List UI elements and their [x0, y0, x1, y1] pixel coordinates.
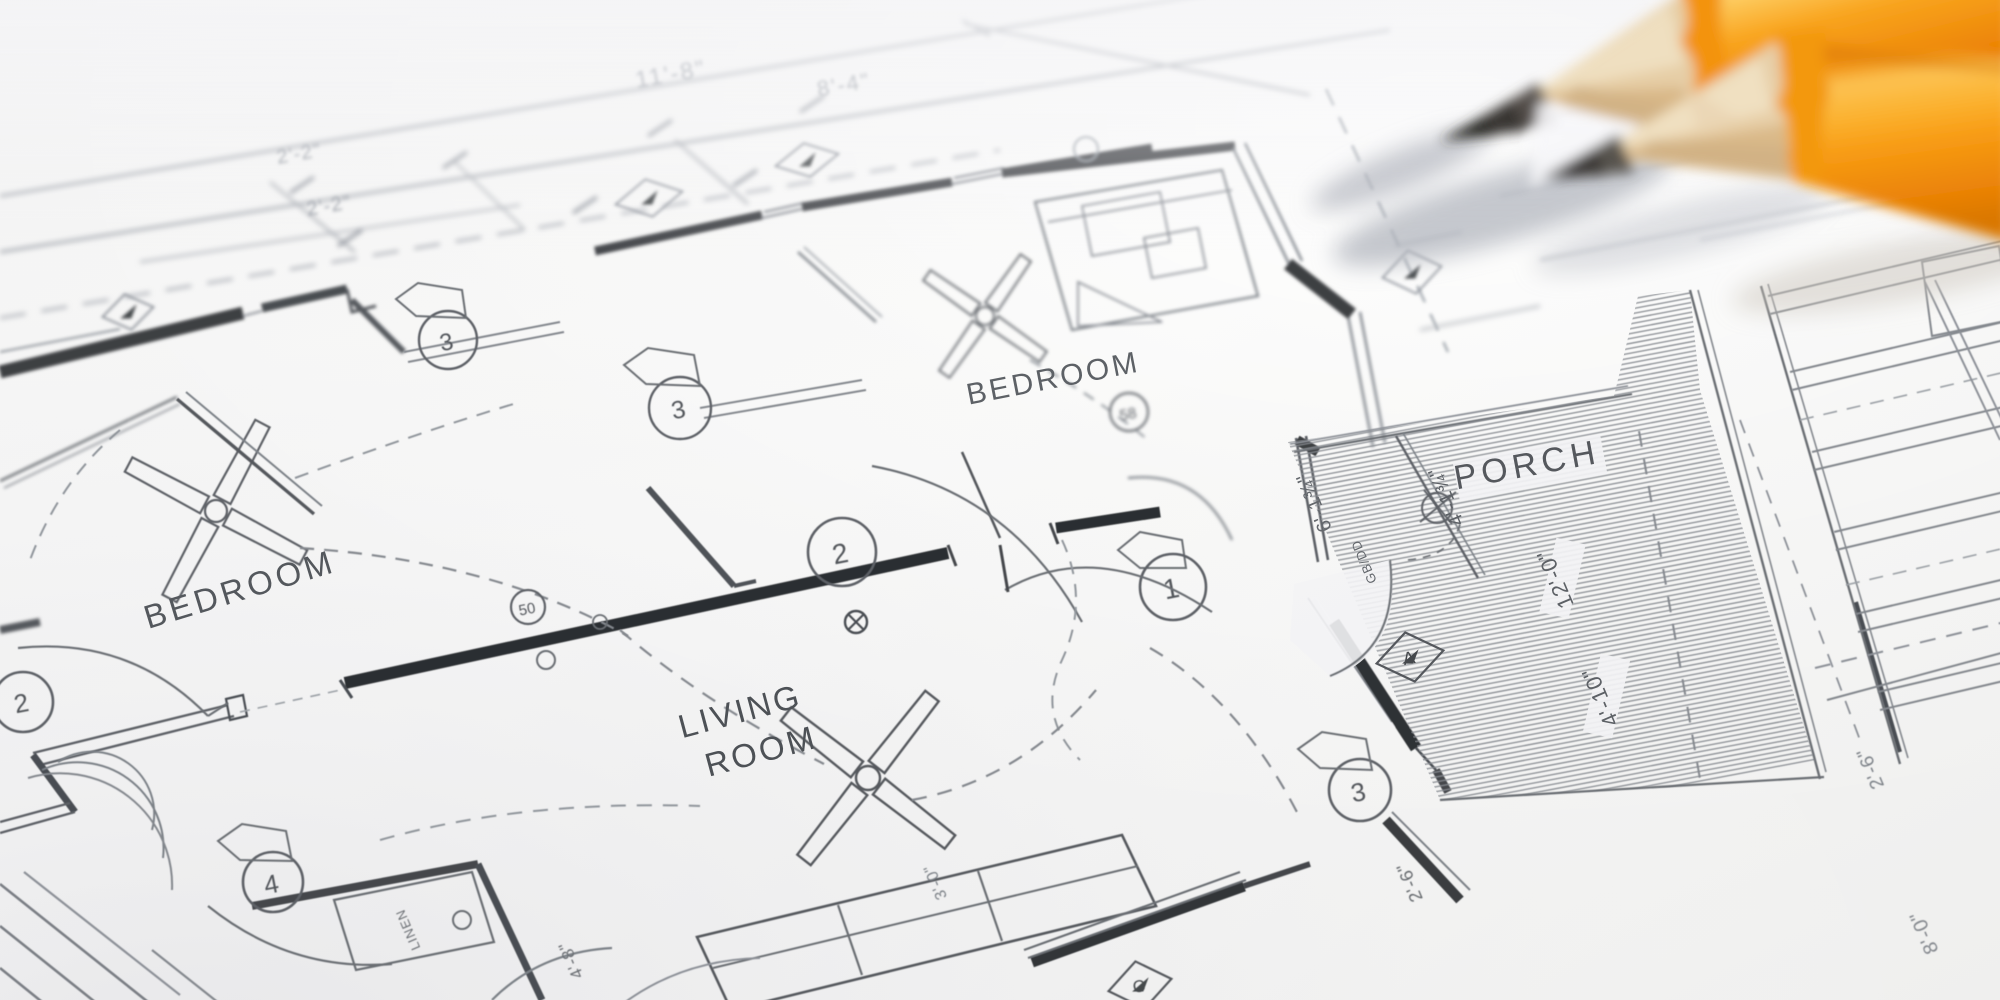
- svg-text:50: 50: [517, 600, 537, 620]
